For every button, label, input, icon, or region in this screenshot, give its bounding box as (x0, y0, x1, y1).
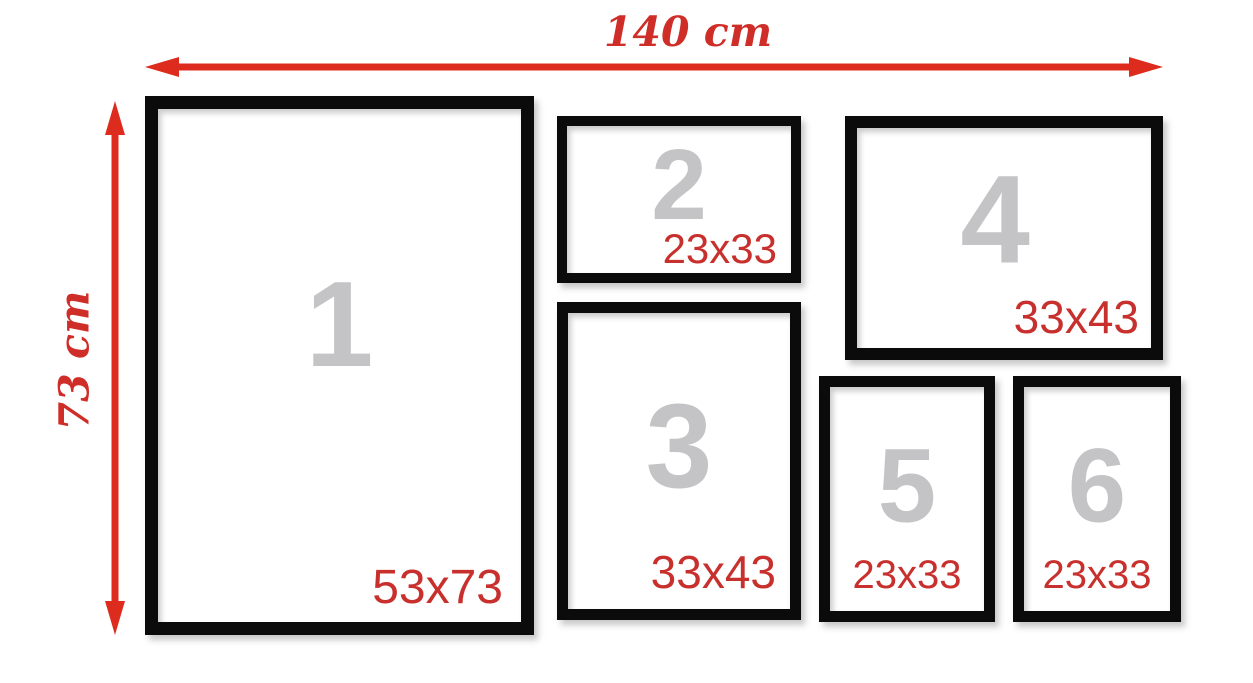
frame-6-size-label: 23x33 (1024, 555, 1170, 595)
width-arrow-icon (145, 56, 1163, 78)
height-arrow-icon (104, 101, 126, 635)
frame-6: 6 23x33 (1013, 376, 1181, 622)
frame-4: 4 33x43 (845, 116, 1163, 360)
frame-2: 2 23x33 (557, 116, 801, 283)
frame-4-number: 4 (960, 158, 1030, 283)
frame-5-size-label: 23x33 (830, 555, 984, 595)
frame-2-number: 2 (651, 135, 707, 235)
frame-set-diagram: 140 cm 73 cm 1 53x73 2 23x33 3 33x43 4 3… (0, 0, 1253, 683)
frame-1: 1 53x73 (145, 96, 534, 635)
frame-5: 5 23x33 (819, 376, 995, 622)
frame-4-size-label: 33x43 (1014, 294, 1139, 340)
frame-3: 3 33x43 (557, 302, 801, 620)
height-dimension-label: 73 cm (55, 251, 96, 471)
width-dimension-label: 140 cm (558, 12, 818, 53)
frame-3-size-label: 33x43 (651, 549, 776, 595)
frame-1-number: 1 (306, 263, 374, 385)
frame-6-number: 6 (1068, 433, 1126, 538)
frame-3-number: 3 (646, 386, 713, 506)
frame-2-size-label: 23x33 (663, 228, 777, 270)
frame-5-number: 5 (878, 433, 936, 538)
frame-1-size-label: 53x73 (372, 564, 503, 612)
